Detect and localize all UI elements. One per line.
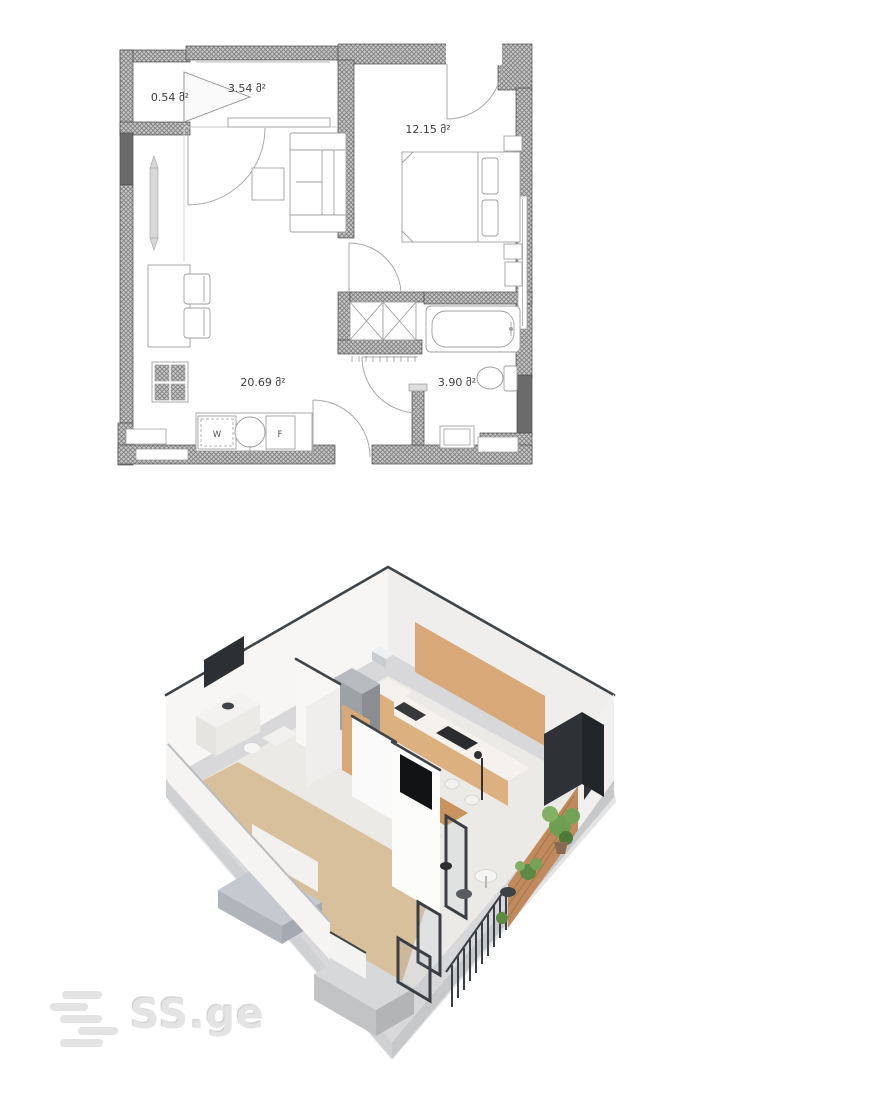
nightstand [504,136,522,151]
bathtub [426,306,520,352]
listing-image: 0.54 მ² 3.54 მ² 12.15 მ² 20.69 მ² 3.90 მ… [0,0,888,1094]
fridge-label: F [278,430,283,440]
sofa [290,133,346,232]
logo-bar [60,1039,103,1047]
logo-bar [62,991,102,999]
room-label-storage: 0.54 მ² [151,91,189,104]
bedroom-top-door [447,64,502,119]
floor-plan: 0.54 მ² 3.54 მ² 12.15 მ² 20.69 მ² 3.90 მ… [0,0,888,520]
stove [152,362,188,402]
bedroom-living-door [349,243,401,292]
room-label-living: 20.69 მ² [240,376,285,389]
nightstand [504,244,522,259]
coffee-table [252,168,284,200]
logo-bar [78,1027,118,1035]
room-label-bedroom: 12.15 მ² [405,123,450,136]
logo-bar [50,1003,88,1011]
kitchen-sink [235,417,265,447]
room-label-hallway: 3.54 მ² [228,82,266,95]
hall-shelf [228,118,330,127]
ssge-watermark: SS.ge [48,984,248,1054]
render-tv-wall [392,742,440,914]
logo-bar [60,1015,102,1023]
bed [402,152,520,242]
washer-label: W [213,430,222,440]
dining-table [148,265,210,347]
bedroom-cabinet [505,262,522,286]
ssge-logo-text: SS.ge [130,990,265,1038]
furniture-layer [148,118,522,456]
radiator [150,156,158,250]
toilet [477,366,517,391]
entry-door-leaf [184,72,250,122]
room-label-bathroom: 3.90 მ² [438,376,476,389]
